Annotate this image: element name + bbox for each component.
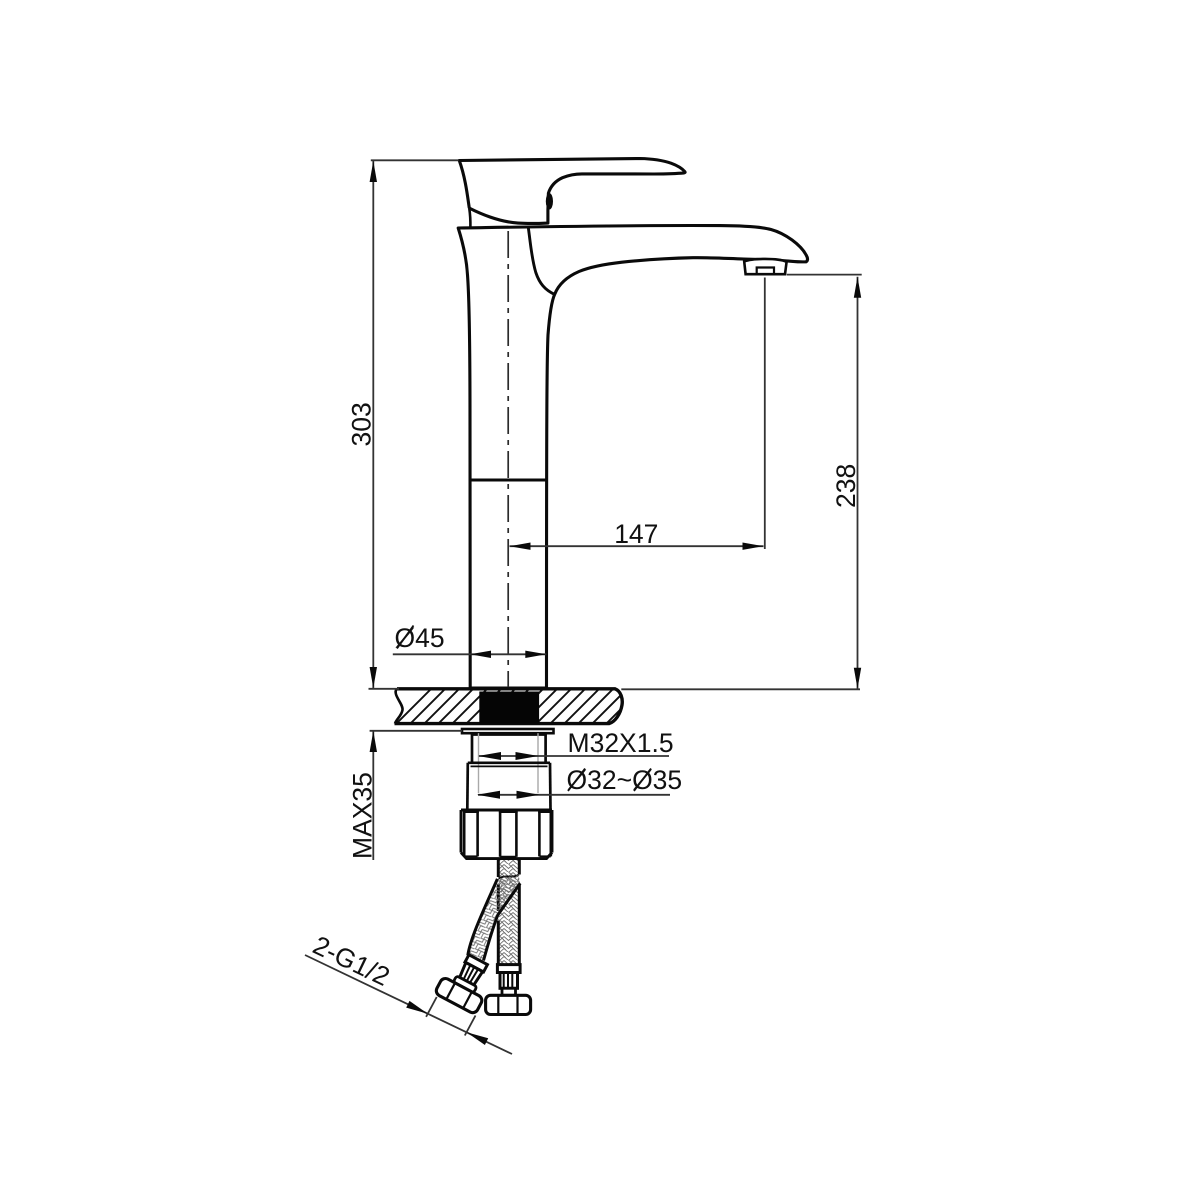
svg-text:147: 147	[614, 519, 658, 549]
svg-text:M32X1.5: M32X1.5	[568, 728, 674, 758]
svg-text:Ø45: Ø45	[395, 623, 445, 653]
svg-text:MAX35: MAX35	[348, 772, 378, 859]
svg-text:303: 303	[347, 402, 377, 446]
svg-text:238: 238	[831, 464, 861, 508]
